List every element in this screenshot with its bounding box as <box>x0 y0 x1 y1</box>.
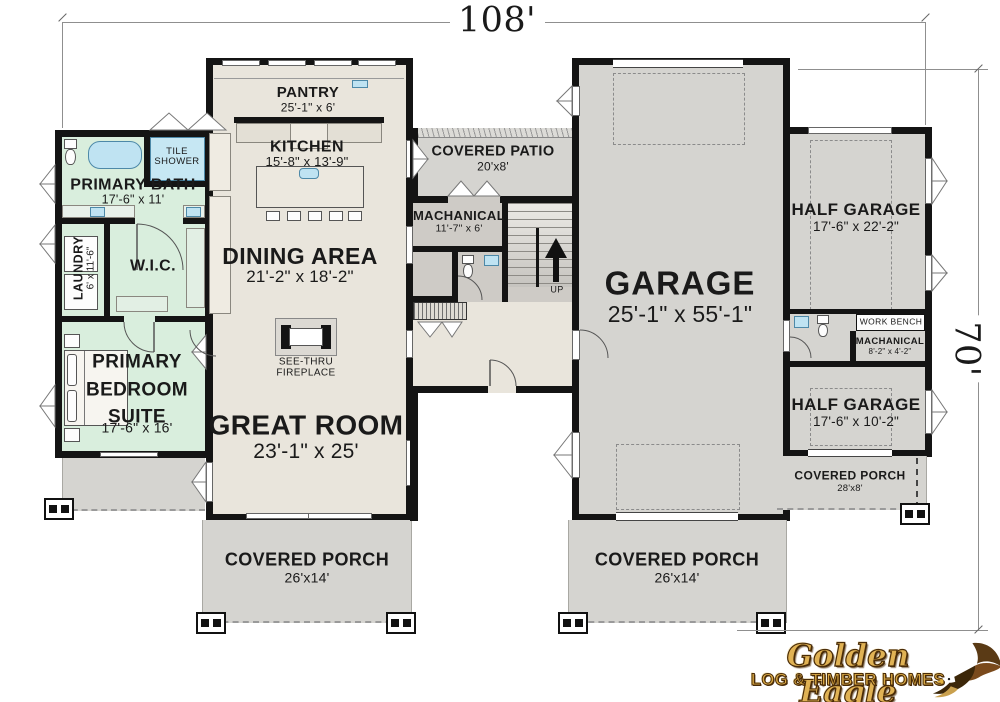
up-arrow-icon <box>545 238 567 282</box>
brand-logo: Golden Eagle LOG & TIMBER HOMES <box>735 640 1000 702</box>
room-dims-covered-porch-right: 26'x14' <box>655 571 700 586</box>
dim-height-label: 70' <box>948 315 985 382</box>
room-dims-half-garage-upper: 17'-6" x 22'-2" <box>813 220 899 234</box>
room-dims-pantry: 25'-1" x 6' <box>281 102 335 115</box>
stairs-up-label: UP <box>550 285 563 294</box>
room-dims-covered-porch-side: 28'x8' <box>837 484 862 494</box>
fireplace-label: SEE-THRU FIREPLACE <box>274 358 338 379</box>
room-label-mechanical-small: MACHANICAL <box>856 337 924 347</box>
room-dims-half-garage-lower: 17'-6" x 10'-2" <box>813 415 899 429</box>
porch-post <box>900 503 930 525</box>
room-dims-primary-bedroom: 17'-6" x 16' <box>101 421 172 436</box>
room-label-dining: DINING AREA <box>222 244 378 268</box>
room-label-covered-porch-left: COVERED PORCH <box>225 551 389 570</box>
dim-width-label: 108' <box>450 3 544 40</box>
room-dims-primary-bath: 17'-6" x 11' <box>102 193 165 206</box>
room-dims-dining: 21'-2" x 18'-2" <box>246 268 354 286</box>
room-label-covered-patio: COVERED PATIO <box>431 144 554 159</box>
dim-line-width <box>545 22 925 23</box>
room-label-great-room: GREAT ROOM <box>209 410 404 439</box>
dim-line-width <box>62 22 452 23</box>
eagle-icon <box>931 640 1000 702</box>
room-dims-garage: 25'-1" x 55'-1" <box>608 302 752 326</box>
room-label-mechanical-main: MACHANICAL <box>413 209 505 223</box>
room-dims-covered-patio: 20'x8' <box>477 161 509 174</box>
room-dims-mechanical-small: 8'-2" x 4'-2" <box>869 348 912 356</box>
room-label-garage: GARAGE <box>605 267 756 302</box>
room-dims-great-room: 23'-1" x 25' <box>253 441 358 463</box>
room-label-covered-porch-right: COVERED PORCH <box>595 551 759 570</box>
brand-logo-tagline: LOG & TIMBER HOMES <box>745 671 951 690</box>
room-label-tile-shower: TILE SHOWER <box>154 147 200 167</box>
brand-logo-script: Golden Eagle <box>743 638 953 702</box>
porch-post <box>44 498 74 520</box>
room-label-laundry-group: LAUNDRY 6' x 11'-6" <box>72 236 97 300</box>
room-dims-kitchen: 15'-8" x 13'-9" <box>266 155 349 169</box>
room-label-half-garage-lower: HALF GARAGE <box>791 396 920 414</box>
porch-post <box>386 612 416 634</box>
room-dims-mechanical-main: 11'-7" x 6' <box>435 223 482 234</box>
dim-ext-line <box>737 630 988 631</box>
room-label-covered-porch-side: COVERED PORCH <box>794 470 905 483</box>
dim-ext-line <box>925 22 926 125</box>
porch-post <box>558 612 588 634</box>
room-label-wic: W.I.C. <box>130 259 176 276</box>
dim-ext-line <box>62 22 63 128</box>
porch-post <box>196 612 226 634</box>
room-dims-laundry: 6' x 11'-6" <box>86 236 97 300</box>
dim-ext-line <box>798 69 988 70</box>
room-label-pantry: PANTRY <box>277 85 339 101</box>
room-label-laundry: LAUNDRY <box>72 236 86 300</box>
room-label-half-garage-upper: HALF GARAGE <box>791 201 920 219</box>
room-dims-covered-porch-left: 26'x14' <box>285 571 330 586</box>
floor-plan-canvas: 108' 70' PANTRY 25'-1" x 6' KITCHEN 15'-… <box>0 0 1000 702</box>
work-bench-label: WORK BENCH <box>860 318 923 327</box>
